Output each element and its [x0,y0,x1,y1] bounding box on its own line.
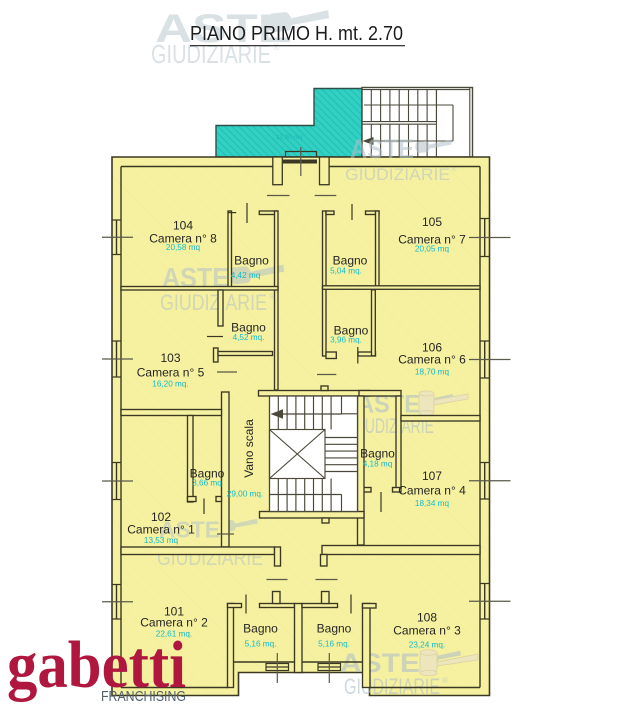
svg-text:5,04 mq.: 5,04 mq. [330,267,362,276]
svg-text:13,53 mq: 13,53 mq [144,536,179,545]
svg-text:4,18 mq: 4,18 mq [363,460,393,469]
svg-text:ASTE: ASTE [350,134,414,164]
svg-text:Camera n° 5: Camera n° 5 [137,366,205,380]
svg-text:23,24 mq.: 23,24 mq. [409,641,445,650]
svg-text:29,00 mq.: 29,00 mq. [227,490,263,499]
svg-text:PIANO PRIMO H. mt. 2.70: PIANO PRIMO H. mt. 2.70 [190,22,403,45]
svg-text:®: ® [452,167,457,174]
svg-text:107: 107 [422,469,442,483]
svg-text:103: 103 [160,351,180,365]
svg-text:18,70 mq: 18,70 mq [415,368,450,377]
svg-text:3,96 mq.: 3,96 mq. [330,336,362,345]
svg-text:104: 104 [173,218,193,232]
svg-text:3,66 mq: 3,66 mq [192,479,222,488]
svg-text:5,16 mq.: 5,16 mq. [318,640,350,649]
svg-text:Vano scala: Vano scala [242,419,256,478]
svg-text:18,34 mq: 18,34 mq [415,499,450,508]
svg-text:GIUDIZIARIE: GIUDIZIARIE [344,674,440,699]
svg-text:105: 105 [422,215,442,229]
svg-text:20,05 mq: 20,05 mq [415,245,450,254]
svg-text:16,20 mq.: 16,20 mq. [152,380,188,389]
svg-text:13,90 mq: 13,90 mq [275,134,302,141]
svg-text:5,16 mq.: 5,16 mq. [245,640,277,649]
svg-text:Camera n° 4: Camera n° 4 [398,484,466,498]
svg-text:Bagno: Bagno [317,622,352,636]
svg-text:Bagno: Bagno [360,447,395,461]
svg-text:GIUDIZIARIE: GIUDIZIARIE [160,290,267,315]
svg-text:GIUDIZIARIE: GIUDIZIARIE [345,165,450,184]
svg-text:108: 108 [417,611,437,625]
svg-text:Camera n° 6: Camera n° 6 [398,353,466,367]
svg-text:Bagno: Bagno [333,254,368,268]
svg-text:Bagno: Bagno [234,254,269,268]
svg-text:FRANCHISING: FRANCHISING [101,689,186,705]
svg-text:Camera n° 3: Camera n° 3 [393,624,461,638]
svg-text:20,58 mq: 20,58 mq [166,243,201,252]
svg-text:Bagno: Bagno [243,622,278,636]
svg-text:4,42 mq: 4,42 mq [231,271,261,280]
svg-text:4,52 mq.: 4,52 mq. [233,333,265,342]
svg-text:Camera n° 2: Camera n° 2 [140,616,208,630]
svg-text:Camera n° 1: Camera n° 1 [127,523,195,537]
svg-text:®: ® [442,676,448,685]
